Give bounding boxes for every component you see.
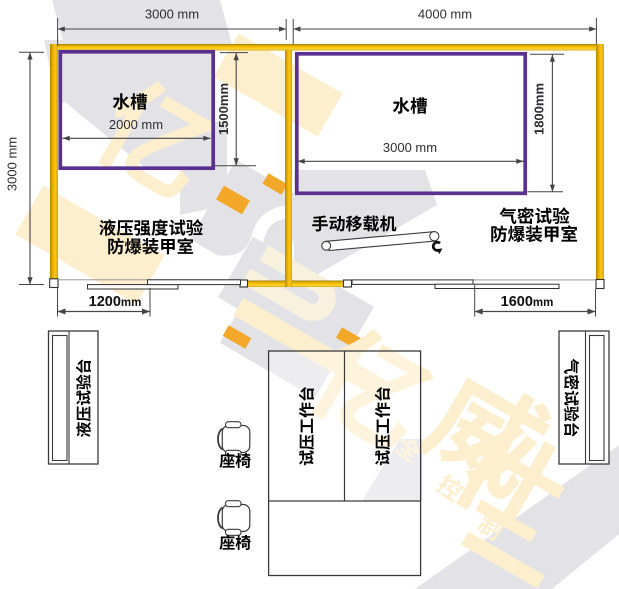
svg-text:4000 mm: 4000 mm [418,7,472,22]
svg-text:3000 mm: 3000 mm [145,7,199,22]
svg-text:1500mm: 1500mm [216,83,231,135]
svg-text:1200mm: 1200mm [89,294,142,310]
svg-text:2000 mm: 2000 mm [109,117,163,132]
svg-text:1600mm: 1600mm [501,294,554,310]
svg-text:3000 mm: 3000 mm [383,140,437,155]
svg-text:3000 mm: 3000 mm [5,137,20,191]
svg-text:1800mm: 1800mm [532,83,547,135]
